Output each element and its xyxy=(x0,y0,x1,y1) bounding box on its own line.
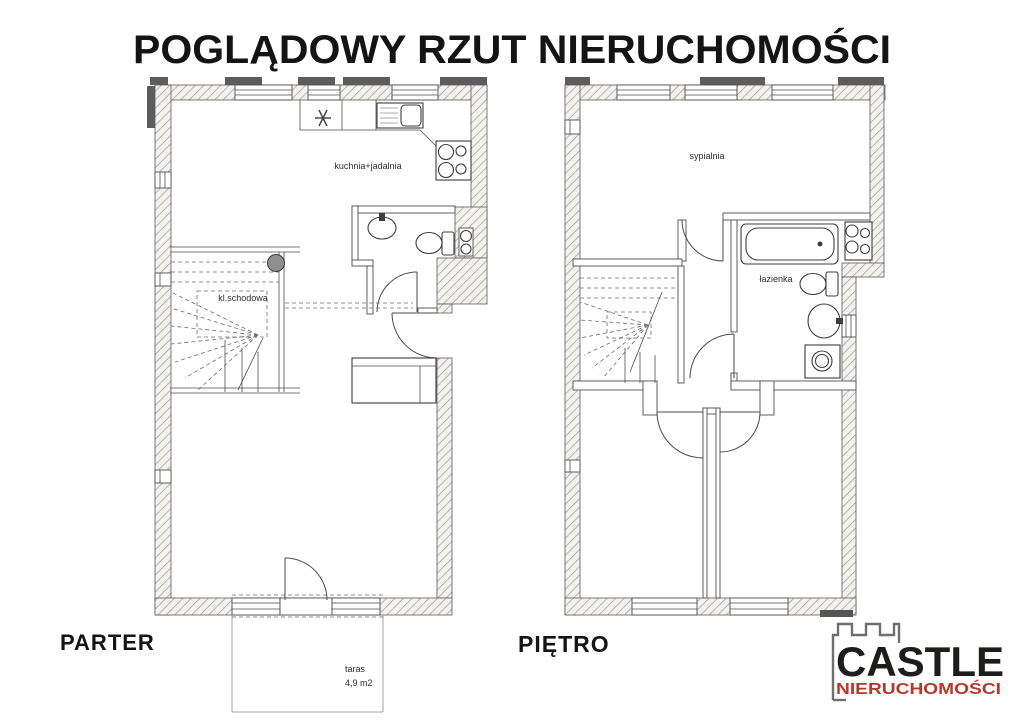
kitchen-label: kuchnia+jadalnia xyxy=(334,161,401,171)
logo-subtitle: NIERUCHOMOŚCI xyxy=(836,680,1001,698)
kitchen-sink-icon xyxy=(377,103,423,128)
window xyxy=(772,85,833,100)
window xyxy=(332,598,380,615)
toilet-icon xyxy=(800,272,838,296)
page-title: POGLĄDOWY RZUT NIERUCHOMOŚCI xyxy=(133,26,891,72)
window xyxy=(842,315,856,337)
window xyxy=(155,273,171,286)
logo-brand: CASTLE xyxy=(836,638,1004,685)
floorplan-page: POGLĄDOWY RZUT NIERUCHOMOŚCI xyxy=(0,0,1024,724)
pietro-title: PIĘTRO xyxy=(518,631,610,657)
window xyxy=(730,598,788,615)
terrace-area-label: 4,9 m2 xyxy=(345,678,373,688)
floorplan-drawing: POGLĄDOWY RZUT NIERUCHOMOŚCI xyxy=(0,0,1024,724)
staircase-label: kl.schodowa xyxy=(218,293,268,303)
bathroom-label: łazienka xyxy=(759,274,792,284)
terrace-label: taras xyxy=(345,664,366,674)
parter-bottom-windows xyxy=(232,595,383,615)
corner-unit-icon xyxy=(845,222,872,260)
pipe-shaft xyxy=(459,228,473,256)
parter-top-windows xyxy=(235,85,438,100)
bathtub-icon xyxy=(741,224,838,264)
stove-icon xyxy=(436,141,471,180)
window xyxy=(155,470,171,483)
window xyxy=(617,85,670,100)
window xyxy=(565,120,580,134)
bedroom-label: sypialnia xyxy=(689,151,724,161)
window xyxy=(155,172,171,188)
window xyxy=(565,460,580,472)
window xyxy=(308,85,340,100)
toilet-icon xyxy=(416,232,454,255)
window xyxy=(632,598,697,615)
terrace-door-threshold xyxy=(280,598,332,615)
window xyxy=(685,85,737,100)
washing-machine-icon xyxy=(805,345,840,378)
window xyxy=(235,85,292,100)
window xyxy=(392,85,438,100)
parter-title: PARTER xyxy=(60,630,155,655)
stair-post xyxy=(268,255,285,272)
window xyxy=(232,598,280,615)
scan-mark xyxy=(820,610,853,617)
pietro-top-windows xyxy=(617,85,833,100)
cabinet xyxy=(352,358,436,403)
